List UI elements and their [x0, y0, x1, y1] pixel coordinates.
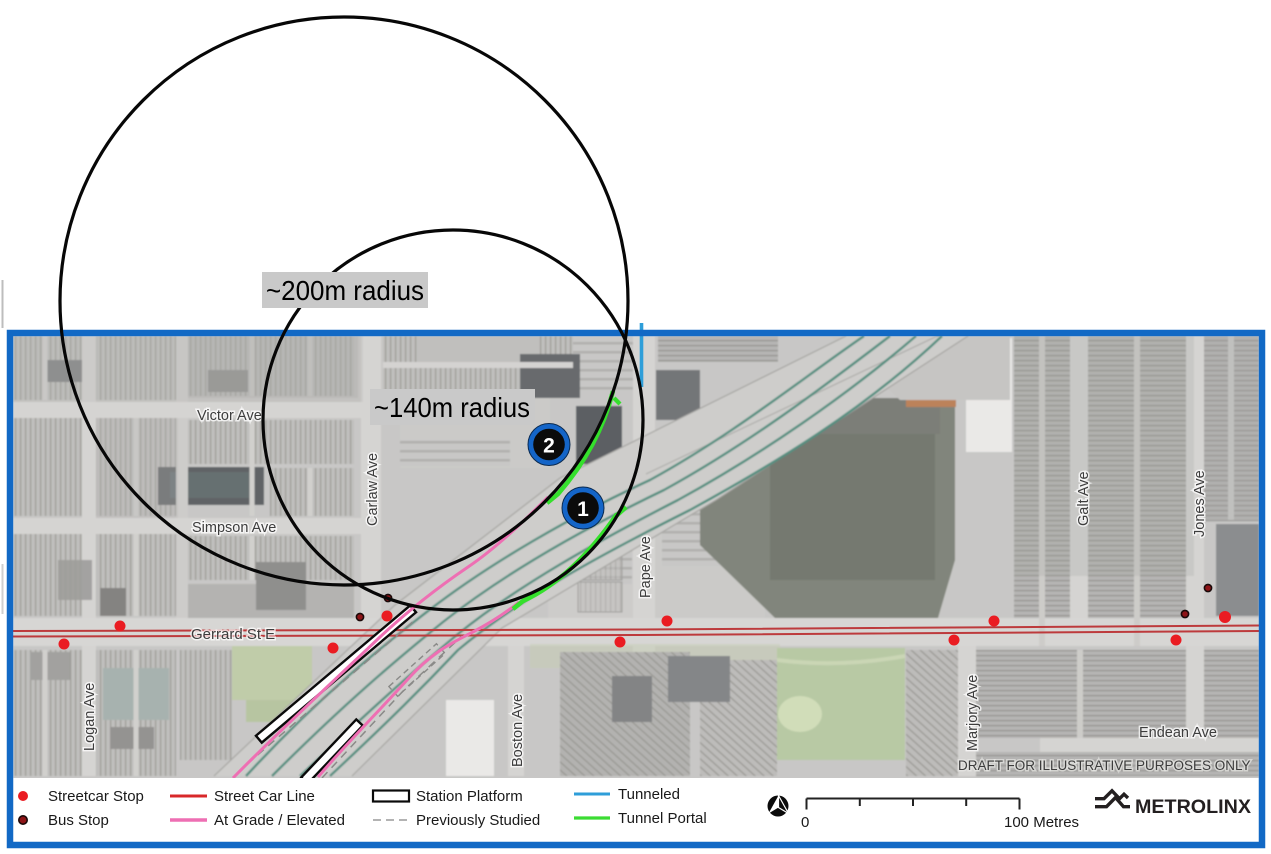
svg-text:Station Platform: Station Platform: [416, 788, 523, 805]
svg-text:1: 1: [577, 498, 589, 521]
svg-text:0: 0: [801, 814, 809, 831]
svg-text:Gerrard St E: Gerrard St E: [191, 626, 275, 643]
svg-text:Tunneled: Tunneled: [618, 786, 680, 803]
svg-text:~200m radius: ~200m radius: [266, 275, 424, 306]
svg-text:Marjory Ave: Marjory Ave: [965, 675, 981, 751]
svg-text:Tunnel Portal: Tunnel Portal: [618, 810, 707, 827]
svg-text:At Grade / Elevated: At Grade / Elevated: [214, 812, 345, 829]
svg-text:Street Car Line: Street Car Line: [214, 788, 315, 805]
svg-text:Victor Ave: Victor Ave: [197, 408, 262, 424]
svg-text:METROLINX: METROLINX: [1135, 796, 1251, 818]
svg-text:Logan Ave: Logan Ave: [82, 683, 98, 751]
svg-text:Pape Ave: Pape Ave: [638, 536, 654, 598]
svg-text:Boston Ave: Boston Ave: [510, 694, 526, 767]
svg-text:Previously Studied: Previously Studied: [416, 812, 540, 829]
svg-text:Endean Ave: Endean Ave: [1139, 725, 1217, 741]
svg-text:Bus Stop: Bus Stop: [48, 812, 109, 829]
svg-text:~140m radius: ~140m radius: [374, 392, 530, 423]
svg-text:Galt Ave: Galt Ave: [1076, 471, 1092, 526]
svg-text:DRAFT FOR ILLUSTRATIVE PURPOSE: DRAFT FOR ILLUSTRATIVE PURPOSES ONLY: [958, 758, 1251, 773]
svg-text:Streetcar Stop: Streetcar Stop: [48, 788, 144, 805]
svg-text:Simpson Ave: Simpson Ave: [192, 520, 276, 536]
svg-text:100 Metres: 100 Metres: [1004, 814, 1079, 831]
svg-text:2: 2: [543, 435, 555, 458]
svg-text:Carlaw Ave: Carlaw Ave: [365, 453, 381, 526]
svg-text:Jones Ave: Jones Ave: [1192, 470, 1208, 537]
